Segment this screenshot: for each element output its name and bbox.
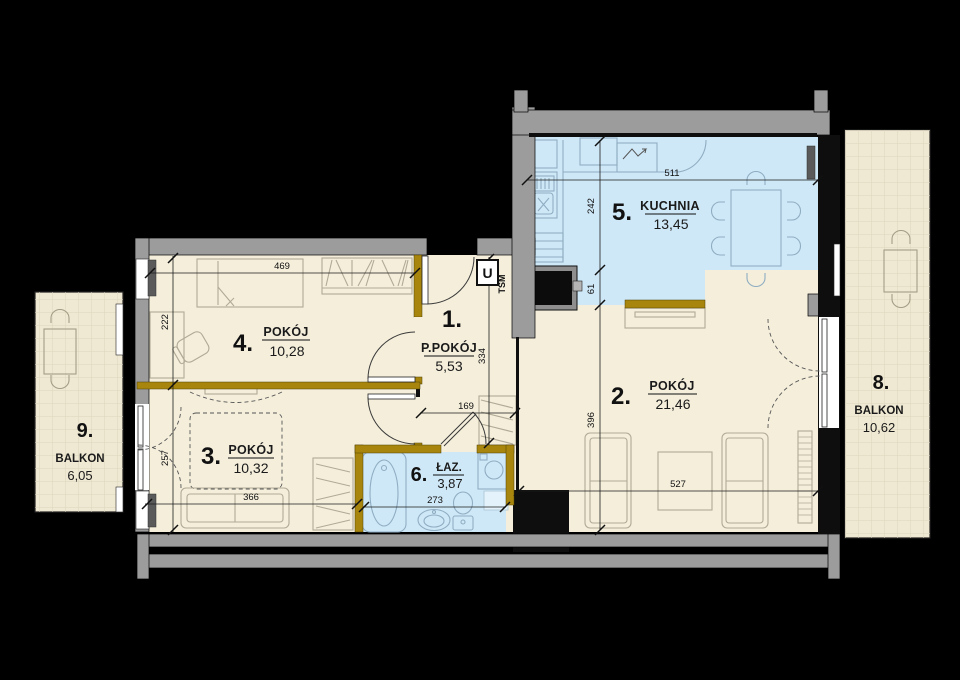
shaft-marker: TSM [497, 275, 507, 294]
dim-label-hall-depth: 334 [477, 348, 488, 364]
room-area: 10,28 [269, 343, 304, 359]
radiator-icon [148, 260, 156, 296]
room-name: P.POKÓJ [421, 340, 477, 355]
balcony-8 [845, 130, 930, 538]
bathroom-wall [506, 445, 514, 505]
room-number: 9. [77, 420, 94, 442]
entrance-marker: U [482, 265, 492, 281]
room3-door-leaf [368, 394, 415, 399]
floor-plan: 469 222 257 366 273 169 334 511 242 61 3… [0, 0, 960, 680]
dim-label-kitchen-depth: 242 [586, 198, 597, 214]
room-number: 2. [611, 383, 631, 410]
room-number: 3. [201, 443, 221, 470]
room-area: 6,05 [67, 468, 92, 483]
dim-label-room4-width: 469 [274, 261, 290, 272]
room-name: BALKON [854, 405, 903, 417]
window-room3 [136, 491, 149, 529]
room-number: 5. [612, 199, 632, 226]
room-name: ŁAZ. [436, 462, 462, 474]
room-area: 13,45 [653, 216, 688, 232]
room-name: POKÓJ [263, 324, 308, 339]
room-area: 3,87 [437, 476, 462, 491]
room-area: 10,32 [233, 460, 268, 476]
dim-label-kitchen-strip: 61 [586, 284, 597, 295]
room-number: 6. [411, 464, 428, 486]
dim-label-room2-depth: 396 [586, 412, 597, 428]
room-name: KUCHNIA [640, 199, 700, 213]
window-room4 [136, 259, 149, 299]
dim-label-bathroom-width: 273 [427, 495, 443, 506]
balcony-glass-panel [116, 487, 123, 512]
radiator-icon [807, 146, 815, 179]
room-area: 10,62 [863, 420, 896, 435]
room-number: 1. [442, 306, 462, 333]
dim-label-room2-width: 527 [670, 479, 686, 490]
room-number: 4. [233, 330, 253, 357]
room-number: 8. [873, 372, 890, 394]
dim-label-room4-depth: 222 [160, 314, 171, 330]
bathroom-wall [355, 445, 441, 453]
room-name: BALKON [55, 453, 104, 465]
entrance-door-leaf [422, 256, 428, 304]
dim-label-room3-depth: 257 [160, 450, 171, 466]
bathroom-wall [355, 445, 363, 532]
window-kitchen [834, 244, 840, 296]
bar-counter [625, 300, 705, 308]
room-area: 5,53 [435, 358, 462, 374]
room-name: POKÓJ [228, 442, 273, 457]
dim-label-room3-width: 366 [243, 492, 259, 503]
room4-door-leaf [368, 377, 415, 382]
floor-plan-page: 469 222 257 366 273 169 334 511 242 61 3… [0, 0, 960, 680]
room-area: 21,46 [655, 396, 690, 412]
balcony-glass-panel [116, 304, 123, 355]
room-name: POKÓJ [649, 378, 694, 393]
dim-label-kitchen-width: 511 [664, 168, 679, 179]
dim-label-hall-width: 169 [458, 401, 474, 412]
radiator-icon [148, 494, 156, 527]
balcony-tile-grid [845, 130, 930, 538]
room-divider-wall [137, 382, 420, 389]
